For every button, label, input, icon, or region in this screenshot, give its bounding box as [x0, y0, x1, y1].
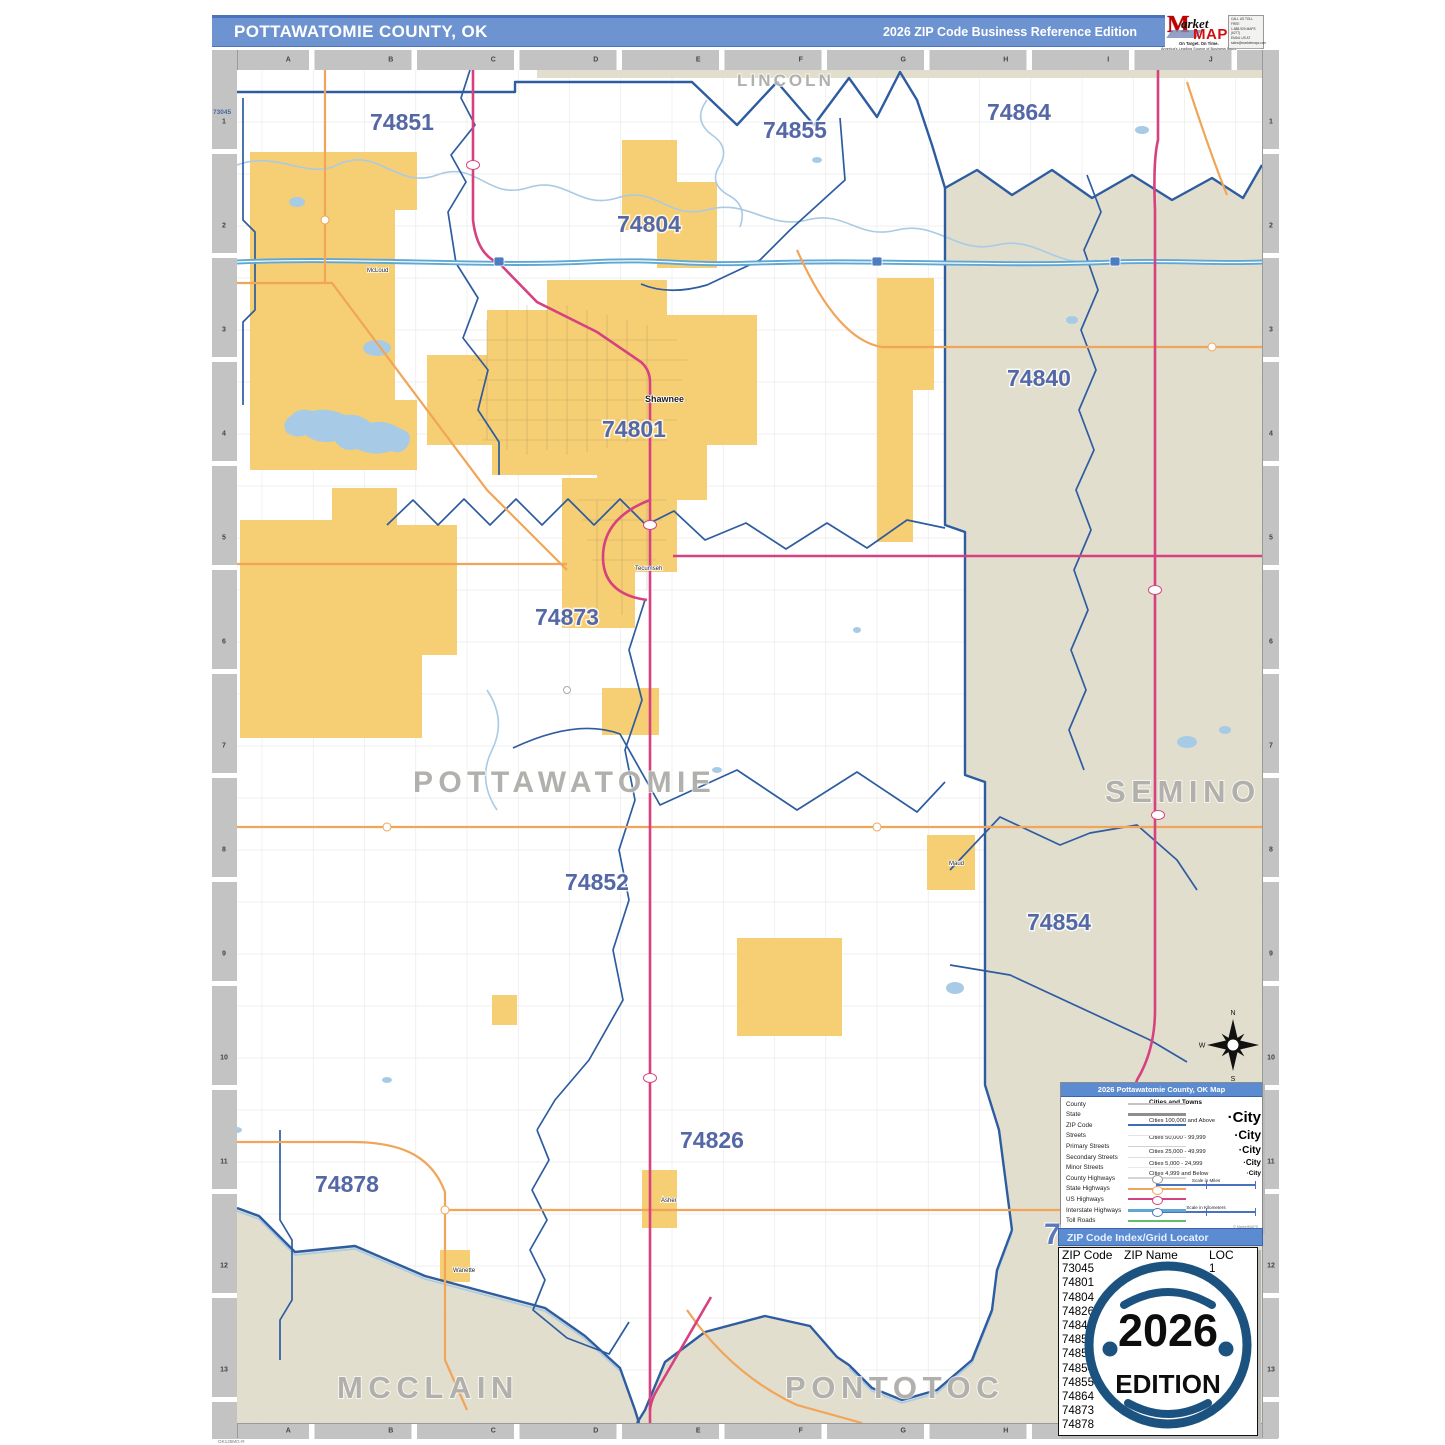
zip-code-label: 74854 [1027, 909, 1091, 935]
grid-number: 8 [1269, 847, 1273, 854]
grid-number: 2 [222, 223, 226, 230]
grid-letter: I [1107, 57, 1109, 64]
legend-title: 2026 Pottawatomie County, OK Map [1061, 1083, 1262, 1097]
legend-line-sample [1128, 1113, 1186, 1116]
legend-row-label: State Highways [1066, 1185, 1128, 1192]
legend-row: Toll Roads [1066, 1216, 1196, 1226]
map-sheet: POTTAWATOMIE COUNTY, OK 2026 ZIP Code Bu… [0, 0, 1445, 1445]
grid-number: 9 [1269, 951, 1273, 958]
legend-row-label: State [1066, 1111, 1128, 1118]
legend-row-label: County [1066, 1101, 1128, 1108]
legend-line-sample [1128, 1167, 1186, 1168]
town-name-label: McLoud [367, 268, 388, 274]
legend-line-sample [1128, 1198, 1186, 1200]
grid-number: 1 [222, 119, 226, 126]
grid-letter: D [593, 1428, 598, 1435]
grid-letter: C [491, 1428, 496, 1435]
city-class-sample: ·City [1243, 1158, 1261, 1167]
grid-number: 5 [1269, 535, 1273, 542]
grid-letter: G [901, 1428, 906, 1435]
city-class-sample: ·City [1228, 1109, 1261, 1126]
badge-left-dot-icon [1103, 1342, 1118, 1357]
town-name-label: Tecumseh [635, 566, 662, 572]
legend-line-sample [1128, 1220, 1186, 1222]
grid-number: 12 [1267, 1263, 1275, 1270]
grid-letter: A [286, 57, 291, 64]
grid-number: 1 [1269, 119, 1273, 126]
legend-row-label: Toll Roads [1066, 1217, 1128, 1224]
legend-line-sample [1128, 1177, 1186, 1179]
zip-code-label: 74851 [370, 109, 434, 135]
grid-number: 5 [222, 535, 226, 542]
contact-line: CALL US TOLL FREE [1231, 17, 1261, 27]
zip-code-label: 74840 [1007, 365, 1071, 391]
city-class-sample: ·City [1234, 1128, 1261, 1142]
grid-letter: C [491, 57, 496, 64]
grid-number: 3 [1269, 327, 1273, 334]
grid-number: 10 [1267, 1055, 1275, 1062]
grid-letter: F [799, 57, 803, 64]
legend-line-sample [1128, 1103, 1186, 1105]
zip-code-label: 74855 [763, 117, 827, 143]
county-name-label: SEMINOLE [1105, 774, 1262, 809]
grid-number: 9 [222, 951, 226, 958]
contact-line: 1-888-929-MAPS (6277) [1231, 27, 1261, 37]
grid-strip-right: 12345678910111213 [1262, 50, 1279, 1438]
legend-row: State [1066, 1110, 1196, 1120]
legend-row: Interstate Highways [1066, 1205, 1196, 1215]
zip-code-label: 74804 [617, 211, 681, 237]
svg-text:W: W [1199, 1043, 1206, 1050]
grid-letter: H [1003, 57, 1008, 64]
grid-number: 8 [222, 847, 226, 854]
zip-code-label: 74826 [680, 1127, 744, 1153]
svg-text:N: N [1230, 1010, 1235, 1017]
county-name-label: LINCOLN [737, 71, 834, 90]
grid-letter: J [1209, 57, 1213, 64]
logo-tagline: On Target. On Time. [1179, 41, 1219, 46]
badge-year: 2026 [1118, 1305, 1218, 1356]
grid-number: 6 [222, 639, 226, 646]
legend-row-label: Secondary Streets [1066, 1154, 1128, 1161]
legend-row-label: ZIP Code [1066, 1122, 1128, 1129]
grid-number: 13 [1267, 1367, 1275, 1374]
legend-row-label: Streets [1066, 1132, 1128, 1139]
legend-row: Primary Streets [1066, 1141, 1196, 1151]
legend-line-sample [1128, 1188, 1186, 1190]
legend-line-sample [1128, 1146, 1186, 1147]
grid-letter: E [696, 1428, 701, 1435]
footer-product-code: OK125MG-R [218, 1439, 245, 1444]
grid-number: 12 [220, 1263, 228, 1270]
grid-letter: F [799, 1428, 803, 1435]
legend-row: State Highways [1066, 1184, 1196, 1194]
legend-row-label: US Highways [1066, 1196, 1128, 1203]
grid-letter: H [1003, 1428, 1008, 1435]
edition-badge: 2026 EDITION [1080, 1257, 1256, 1433]
town-name-label: Asher [661, 1198, 677, 1204]
logo-contact-lines: CALL US TOLL FREE1-888-929-MAPS (6277)EM… [1231, 17, 1261, 46]
grid-letter: B [388, 57, 393, 64]
edge-zip-label: 73045 [213, 109, 231, 116]
grid-number: 10 [220, 1055, 228, 1062]
grid-number: 13 [220, 1367, 228, 1374]
legend-row-label: Minor Streets [1066, 1164, 1128, 1171]
grid-strip-top: ABCDEFGHIJ [212, 50, 1278, 71]
grid-number: 11 [1267, 1159, 1274, 1166]
city-class-sample: ·City [1239, 1145, 1261, 1156]
legend-row: ZIP Code [1066, 1120, 1196, 1130]
grid-number: 7 [222, 743, 226, 750]
grid-letter: G [901, 57, 906, 64]
legend-row: US Highways [1066, 1194, 1196, 1204]
zip-code-label: 74852 [565, 869, 629, 895]
county-name-label: PONTOTOC [785, 1370, 1004, 1405]
county-name-label: MCCLAIN [337, 1370, 519, 1405]
town-name-label: Maud [949, 861, 964, 867]
edition-subtitle: 2026 ZIP Code Business Reference Edition [883, 25, 1165, 39]
badge-word: EDITION [1115, 1369, 1220, 1399]
grid-number: 7 [1269, 743, 1273, 750]
legend-row-label: Interstate Highways [1066, 1207, 1128, 1214]
grid-letter: A [286, 1428, 291, 1435]
grid-number: 4 [1269, 431, 1273, 438]
grid-letter: D [593, 57, 598, 64]
grid-number: 4 [222, 431, 226, 438]
header-bar: POTTAWATOMIE COUNTY, OK 2026 ZIP Code Bu… [212, 15, 1165, 47]
grid-letter: E [696, 57, 701, 64]
grid-number: 2 [1269, 223, 1273, 230]
grid-strip-left: 12345678910111213 [212, 50, 238, 1438]
zip-code-label: 74878 [315, 1171, 379, 1197]
county-name-label: POTTAWATOMIE [413, 766, 716, 799]
legend-line-sample [1128, 1209, 1186, 1212]
zip-code-label: 74801 [602, 416, 666, 442]
logo-contact-box: CALL US TOLL FREE1-888-929-MAPS (6277)EM… [1228, 15, 1264, 49]
legend-row-label: Primary Streets [1066, 1143, 1128, 1150]
legend-row: County Highways [1066, 1173, 1196, 1183]
page-title: POTTAWATOMIE COUNTY, OK [212, 22, 488, 42]
legend-line-sample [1128, 1124, 1186, 1126]
grid-letter: B [388, 1428, 393, 1435]
legend-row: Streets [1066, 1131, 1196, 1141]
legend-line-sample [1128, 1135, 1186, 1136]
town-name-label: Wanette [453, 1268, 476, 1274]
zip-code-label: 74873 [535, 604, 599, 630]
legend-row: County [1066, 1099, 1196, 1109]
town-name-label: Shawnee [645, 394, 684, 404]
zip-code-label: 74864 [987, 99, 1051, 125]
zip-index-header-bar: ZIP Code Index/Grid Locator [1058, 1228, 1263, 1246]
legend-box: 2026 Pottawatomie County, OK Map Cities … [1060, 1082, 1263, 1232]
badge-right-dot-icon [1219, 1342, 1234, 1357]
legend-row-label: County Highways [1066, 1175, 1128, 1182]
contact-line: sales@marketmaps.com [1231, 41, 1261, 46]
grid-number: 6 [1269, 639, 1273, 646]
legend-row: Minor Streets [1066, 1163, 1196, 1173]
city-class-sample: ·City [1247, 1170, 1261, 1177]
grid-number: 3 [222, 327, 226, 334]
legend-row: Secondary Streets [1066, 1152, 1196, 1162]
legend-line-sample [1128, 1157, 1186, 1158]
grid-number: 11 [220, 1159, 227, 1166]
